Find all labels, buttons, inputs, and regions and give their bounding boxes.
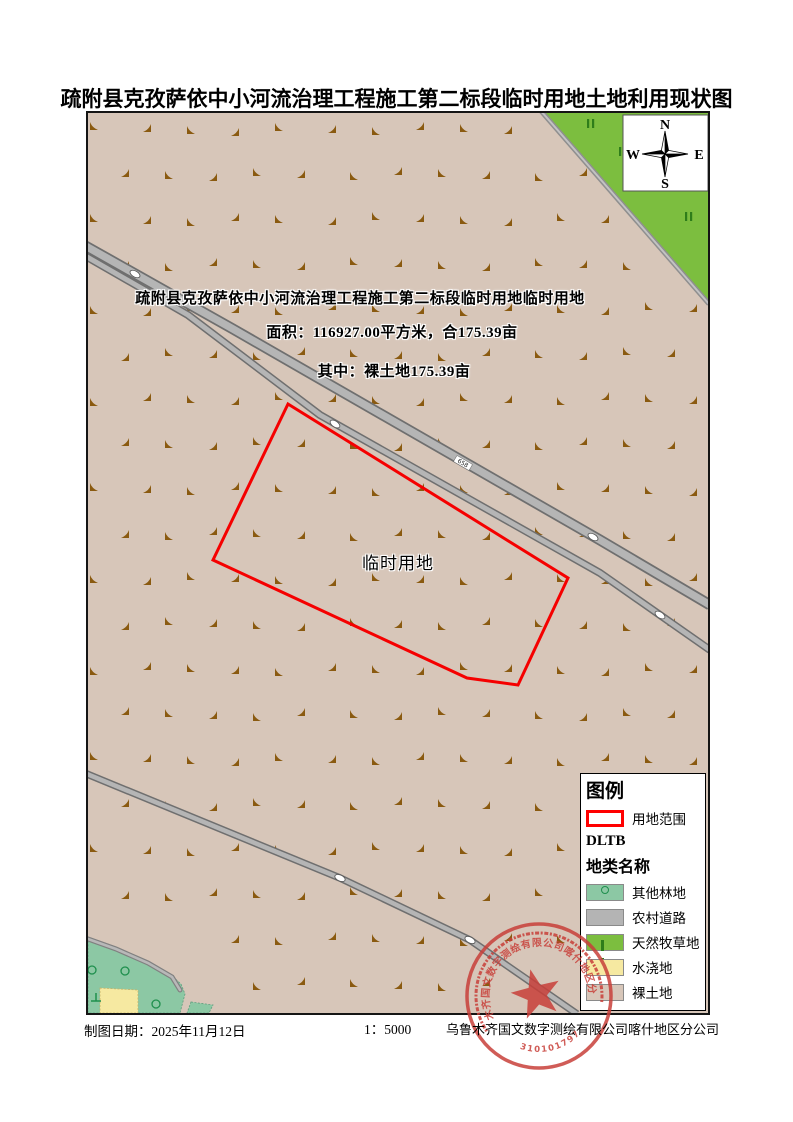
ring-symbol xyxy=(601,886,609,894)
legend-item-forest: 其他林地 xyxy=(586,882,705,902)
land-use-map-page: { "title": "疏附县克孜萨依中小河流治理工程施工第二标段临时用地土地利… xyxy=(0,0,793,1122)
map-scale: 1：5000 xyxy=(364,1018,411,1038)
legend-title: 图例 xyxy=(586,776,705,803)
parcel-boundary-swatch xyxy=(586,810,624,827)
compass-n: N xyxy=(660,118,670,133)
page-title: 疏附县克孜萨依中小河流治理工程施工第二标段临时用地土地利用现状图 xyxy=(61,83,733,113)
map-date: 制图日期：2025年11月12日 xyxy=(84,1020,246,1040)
legend-boundary-label: 用地范围 xyxy=(632,808,686,828)
annotation-area: 面积：116927.00平方米，合175.39亩 xyxy=(266,321,517,342)
map-frame: 658 N S W E 疏附县克孜萨依中小河流治理工程施工第二标段临时用地临时用… xyxy=(86,111,710,1015)
compass-rose: N S W E xyxy=(623,115,708,192)
compass-e: E xyxy=(694,148,703,163)
legend-dltb: DLTB xyxy=(586,833,705,850)
company-seal: 乌鲁木齐国文数字测绘有限公司喀什地区分公司 6531010179783 xyxy=(453,910,625,1082)
legend-subheading: 地类名称 xyxy=(586,853,705,877)
annotation-title: 疏附县克孜萨依中小河流治理工程施工第二标段临时用地临时用地 xyxy=(135,287,585,308)
seal-company-text: 乌鲁木齐国文数字测绘有限公司喀什地区分公司 xyxy=(453,910,601,1031)
compass-w: W xyxy=(626,148,640,163)
company-name: 乌鲁木齐国文数字测绘有限公司喀什地区分公司 xyxy=(446,1019,719,1038)
forest-swatch xyxy=(586,884,624,901)
parcel-label: 临时用地 xyxy=(362,549,434,574)
compass-s: S xyxy=(661,177,669,192)
irrigated-area xyxy=(100,988,138,1013)
seal-star xyxy=(506,963,565,1021)
legend-boundary-row: 用地范围 xyxy=(586,808,705,828)
annotation-detail: 其中：裸土地175.39亩 xyxy=(318,360,471,381)
